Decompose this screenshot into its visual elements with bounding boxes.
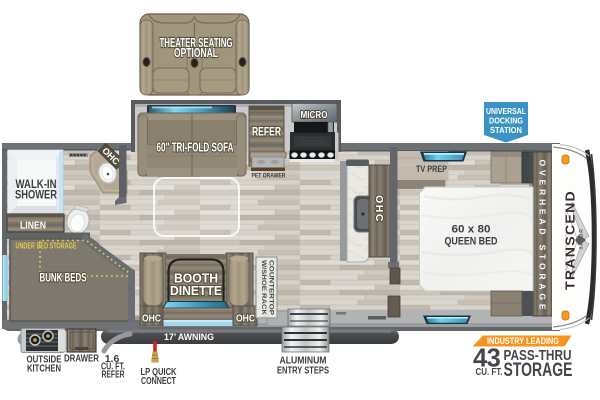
svg-text:ENTRY STEPS: ENTRY STEPS (277, 365, 329, 377)
svg-text:W/SHOE RACK: W/SHOE RACK (260, 260, 267, 315)
svg-text:COUNTERTOP: COUNTERTOP (268, 260, 275, 316)
svg-text:STATION: STATION (490, 126, 522, 135)
svg-text:DRAWER: DRAWER (64, 353, 99, 365)
svg-text:UNDER BED STORAGE: UNDER BED STORAGE (16, 242, 77, 251)
svg-text:LINEN: LINEN (20, 220, 46, 232)
svg-text:OHC: OHC (373, 195, 385, 223)
svg-text:SHOWER: SHOWER (15, 190, 58, 202)
svg-text:TRANSCEND: TRANSCEND (563, 190, 578, 290)
svg-text:OHC: OHC (236, 313, 255, 325)
svg-text:PET DRAWER: PET DRAWER (252, 173, 286, 180)
svg-text:REFER: REFER (252, 127, 282, 139)
svg-text:OHC: OHC (142, 313, 161, 325)
svg-text:REFER: REFER (102, 369, 125, 381)
svg-text:KITCHEN: KITCHEN (27, 363, 61, 375)
svg-text:BUNK BEDS: BUNK BEDS (40, 273, 87, 285)
svg-text:XPLOR: XPLOR (579, 228, 585, 249)
svg-text:QUEEN BED: QUEEN BED (445, 236, 498, 248)
svg-text:60 x 80: 60 x 80 (452, 224, 491, 236)
svg-text:MICRO: MICRO (301, 109, 328, 121)
svg-text:TV PREP: TV PREP (416, 164, 448, 175)
svg-text:OPTIONAL: OPTIONAL (174, 45, 218, 60)
svg-text:DOCKING: DOCKING (489, 117, 523, 126)
svg-text:CONNECT: CONNECT (141, 375, 176, 387)
svg-text:DINETTE: DINETTE (170, 284, 222, 298)
svg-text:17’ AWNING: 17’ AWNING (164, 332, 214, 342)
svg-text:CU. FT.: CU. FT. (476, 366, 503, 378)
svg-text:UNIVERSAL: UNIVERSAL (486, 107, 526, 116)
svg-text:60″ TRI-FOLD SOFA: 60″ TRI-FOLD SOFA (157, 141, 234, 155)
svg-text:STORAGE: STORAGE (504, 360, 573, 381)
